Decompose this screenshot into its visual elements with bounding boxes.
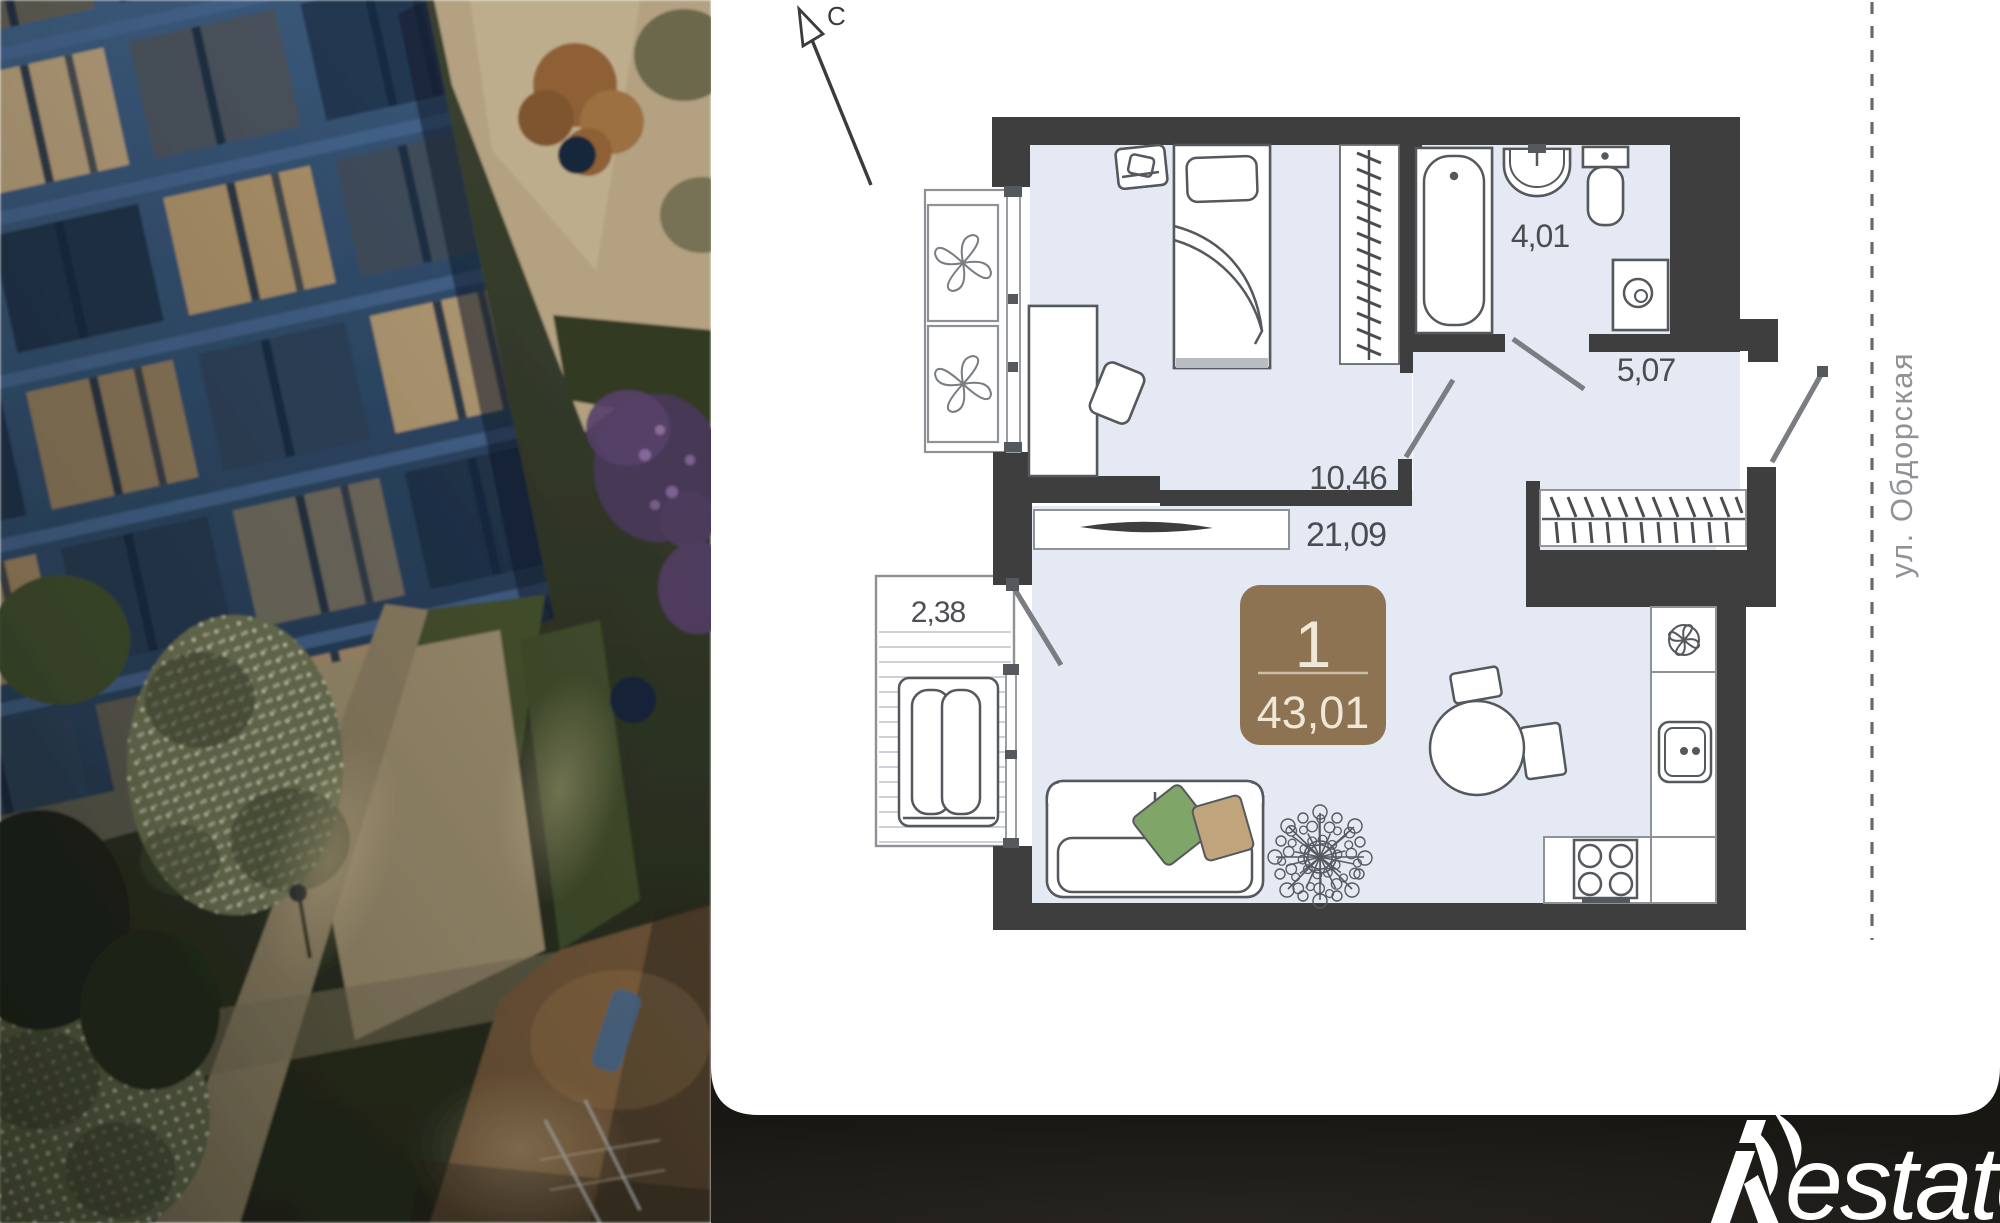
svg-text:ул. Обдорская: ул. Обдорская [1884,352,1919,578]
svg-text:43,01: 43,01 [1257,687,1370,738]
svg-text:10,46: 10,46 [1309,459,1387,496]
svg-text:С: С [827,1,846,31]
svg-text:estate: estate [1785,1126,2000,1223]
svg-text:2,38: 2,38 [911,596,966,629]
svg-text:5,07: 5,07 [1617,352,1675,388]
svg-text:4,01: 4,01 [1511,218,1569,254]
svg-text:21,09: 21,09 [1306,516,1386,554]
svg-text:1: 1 [1295,607,1332,681]
